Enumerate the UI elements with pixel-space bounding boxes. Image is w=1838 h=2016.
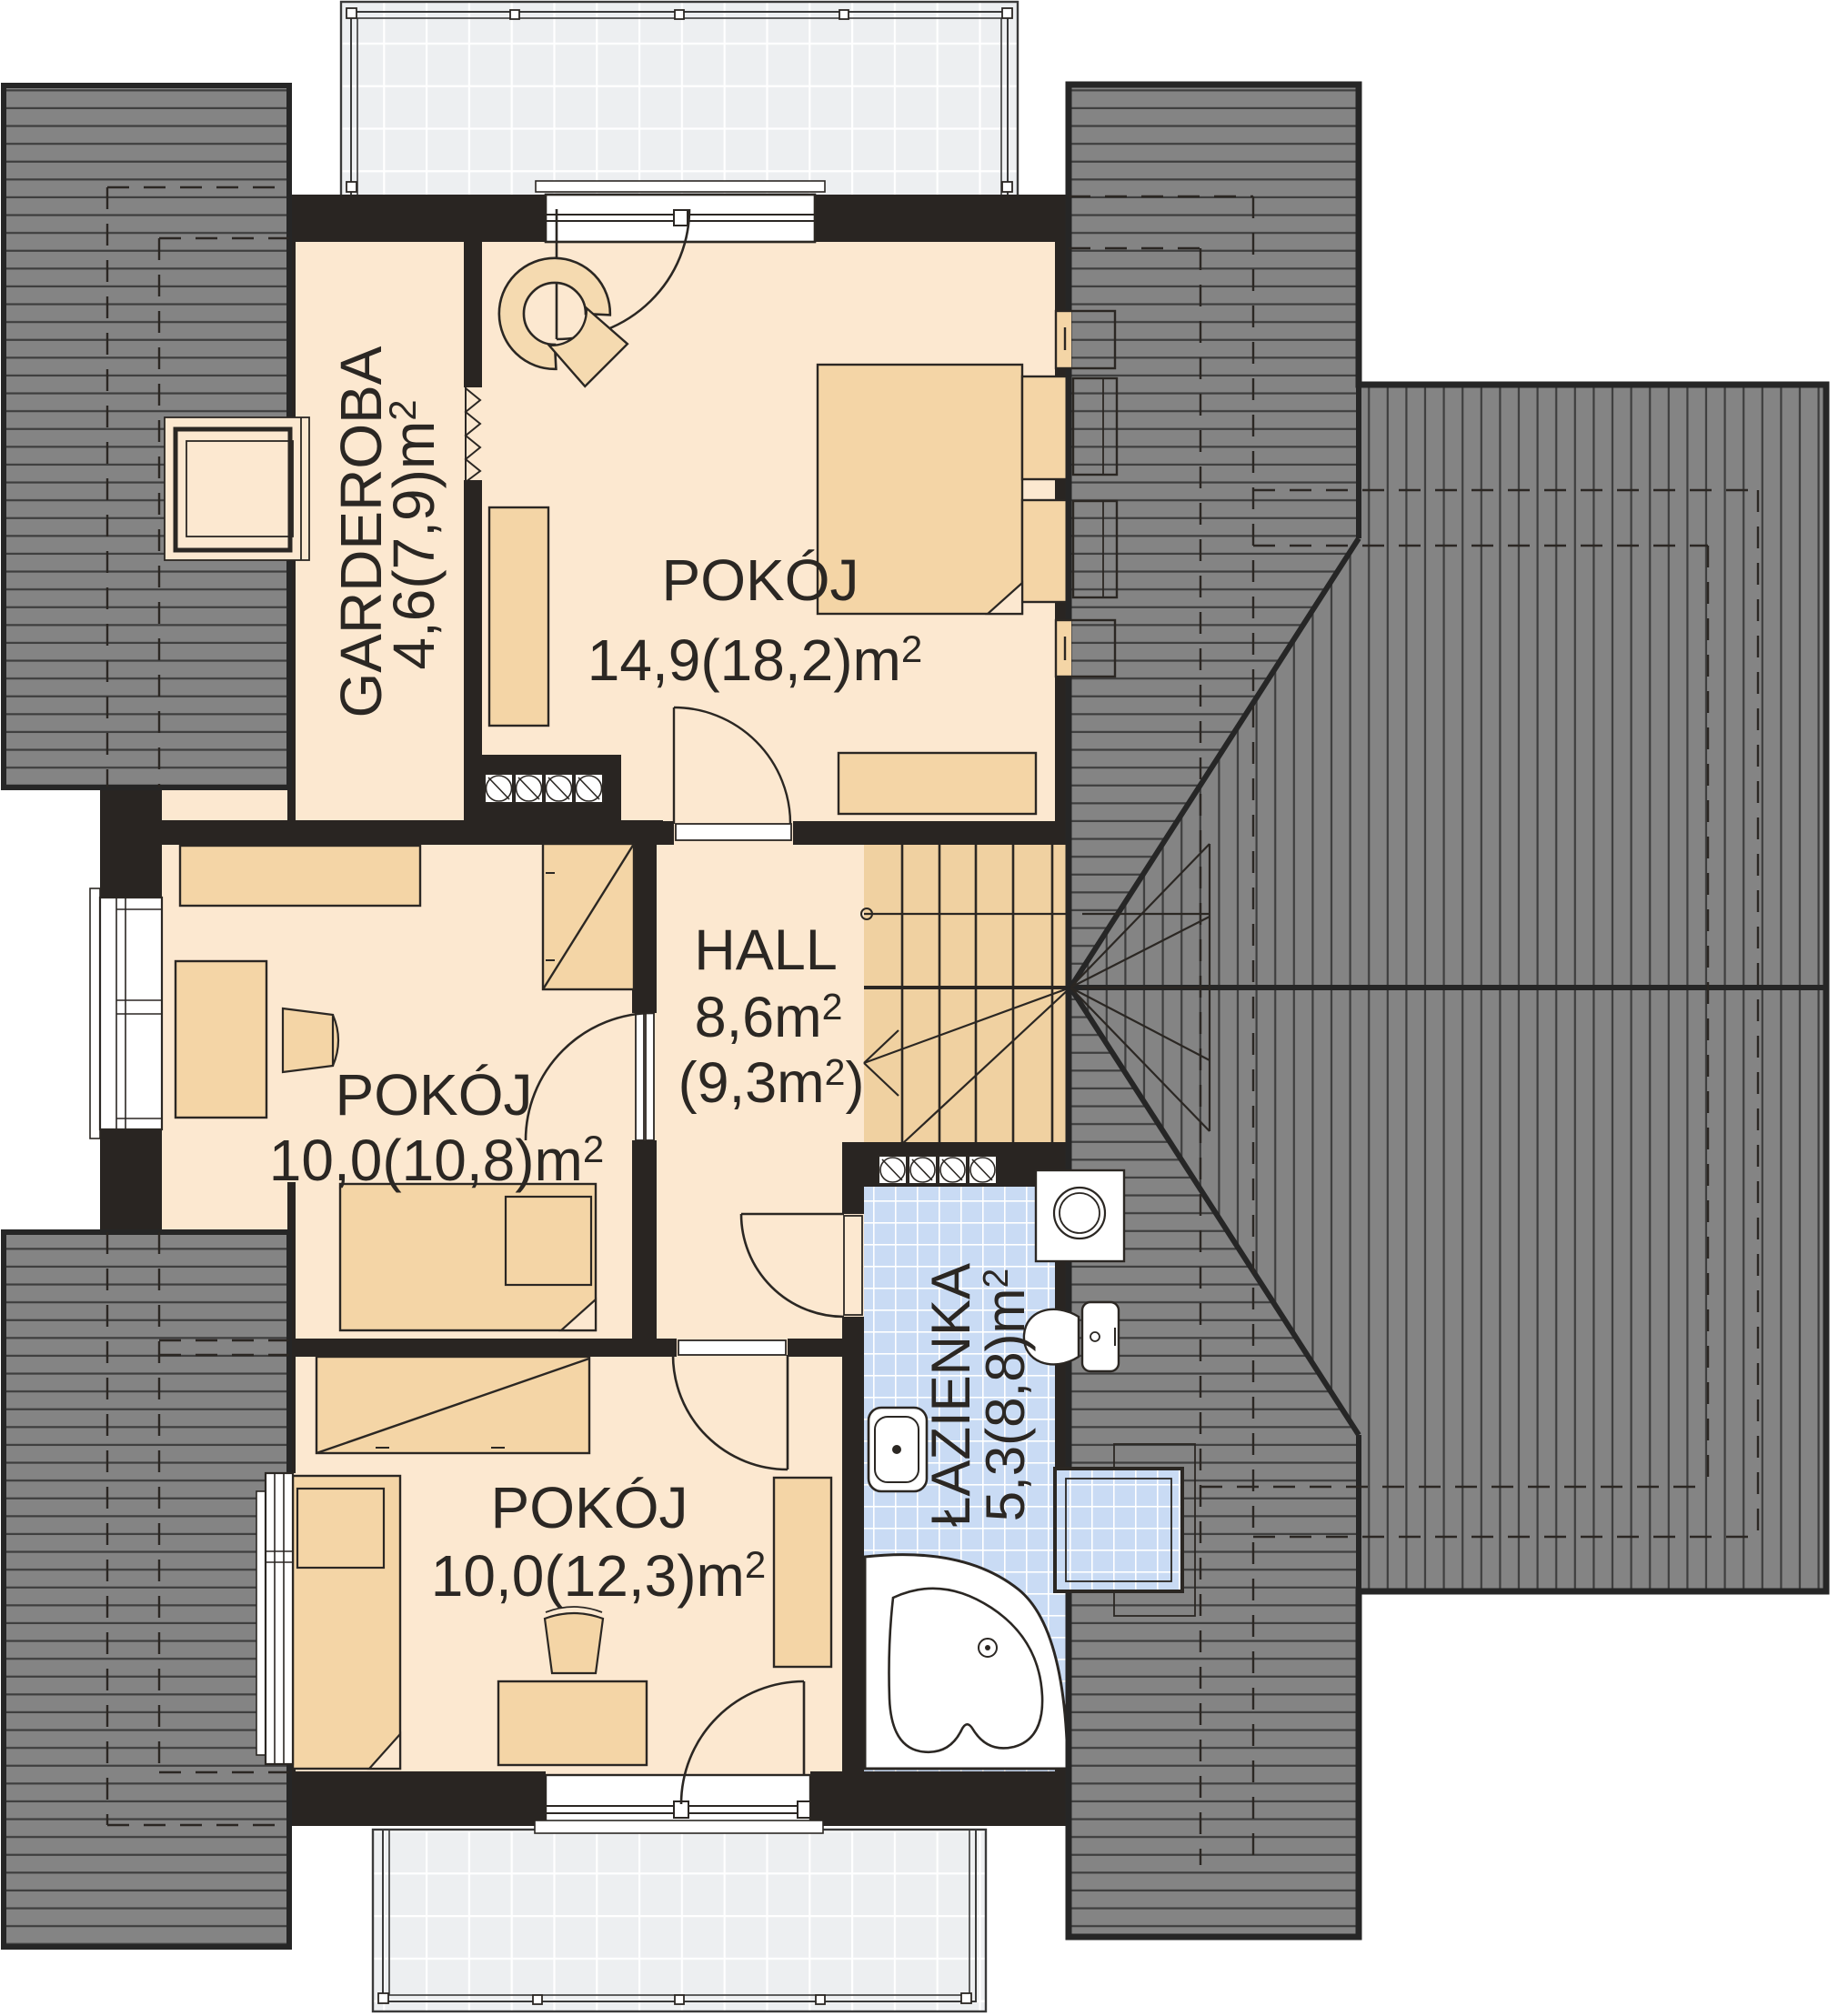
svg-text:5,3(8,8)m2: 5,3(8,8)m2 xyxy=(975,1269,1036,1521)
svg-text:10,0(10,8)m2: 10,0(10,8)m2 xyxy=(269,1128,604,1193)
svg-text:POKÓJ: POKÓJ xyxy=(336,1062,533,1128)
svg-text:POKÓJ: POKÓJ xyxy=(491,1475,688,1540)
svg-text:HALL: HALL xyxy=(694,918,838,982)
svg-text:POKÓJ: POKÓJ xyxy=(662,547,859,613)
svg-text:10,0(12,3)m2: 10,0(12,3)m2 xyxy=(431,1543,766,1609)
svg-text:4,6(7,9)m2: 4,6(7,9)m2 xyxy=(381,399,447,669)
svg-text:ŁAZIENKA: ŁAZIENKA xyxy=(920,1263,981,1527)
svg-text:14,9(18,2)m2: 14,9(18,2)m2 xyxy=(588,627,922,693)
svg-text:8,6m2: 8,6m2 xyxy=(695,986,843,1049)
